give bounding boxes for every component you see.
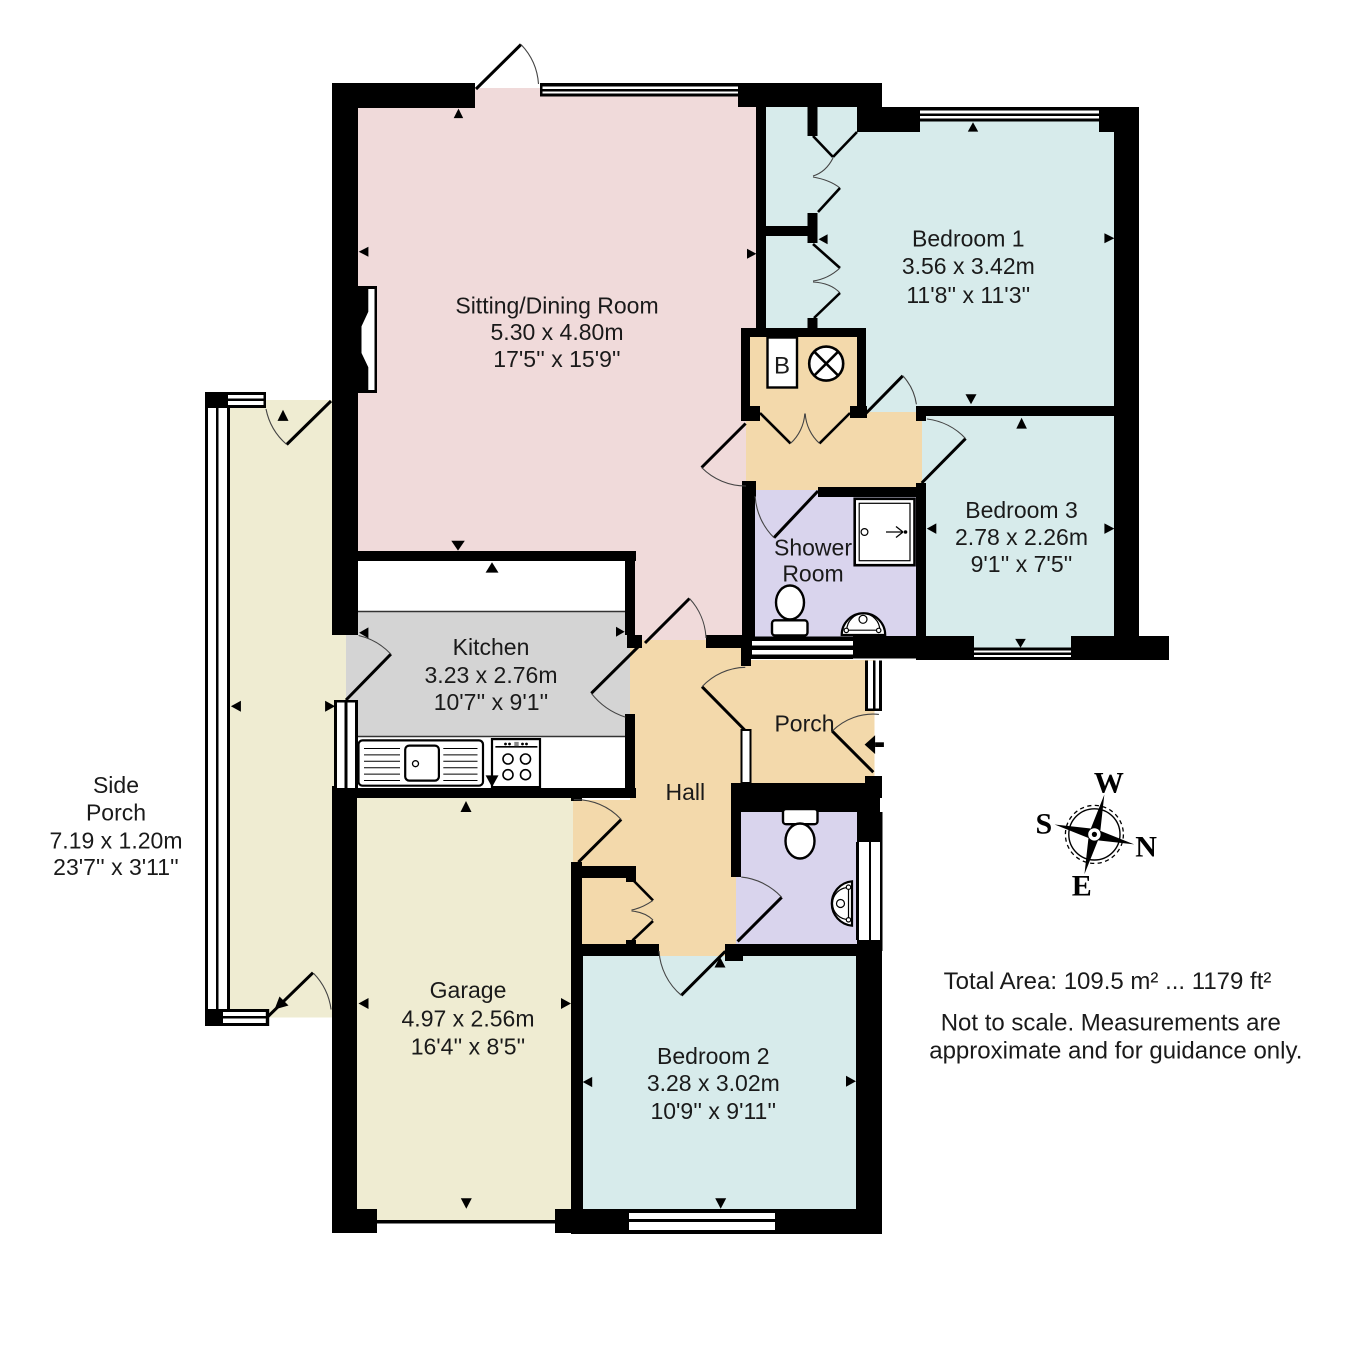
svg-text:Sitting/Dining Room: Sitting/Dining Room <box>455 293 658 319</box>
svg-text:Porch: Porch <box>86 800 146 826</box>
svg-text:10'9'' x 9'11'': 10'9'' x 9'11'' <box>650 1098 776 1124</box>
svg-text:7.19 x 1.20m: 7.19 x 1.20m <box>50 828 183 854</box>
svg-text:Garage: Garage <box>430 977 507 1003</box>
svg-text:E: E <box>1072 870 1092 903</box>
svg-text:Bedroom 2: Bedroom 2 <box>657 1043 770 1069</box>
svg-text:W: W <box>1094 767 1124 800</box>
svg-text:Side: Side <box>93 772 139 798</box>
svg-text:3.23 x 2.76m: 3.23 x 2.76m <box>425 662 558 688</box>
svg-text:Room: Room <box>782 561 843 587</box>
svg-text:B: B <box>774 353 790 380</box>
svg-text:4.97 x 2.56m: 4.97 x 2.56m <box>402 1005 535 1031</box>
svg-text:2.78 x 2.26m: 2.78 x 2.26m <box>955 524 1088 550</box>
svg-text:Porch: Porch <box>774 710 834 736</box>
svg-text:16'4'' x 8'5'': 16'4'' x 8'5'' <box>411 1034 526 1060</box>
svg-text:Total Area: 109.5 m² ... 1179: Total Area: 109.5 m² ... 1179 ft² <box>944 968 1272 995</box>
svg-text:Kitchen: Kitchen <box>453 634 530 660</box>
svg-text:9'1'' x 7'5'': 9'1'' x 7'5'' <box>971 551 1073 577</box>
svg-text:5.30 x 4.80m: 5.30 x 4.80m <box>491 319 624 345</box>
svg-text:Bedroom 1: Bedroom 1 <box>912 225 1025 251</box>
svg-text:Hall: Hall <box>665 779 705 805</box>
svg-text:17'5'' x 15'9'': 17'5'' x 15'9'' <box>493 346 620 372</box>
svg-text:Not to scale. Measurements are: Not to scale. Measurements are <box>941 1010 1281 1037</box>
svg-text:approximate and for guidance o: approximate and for guidance only. <box>929 1038 1302 1065</box>
svg-text:Shower: Shower <box>774 535 852 561</box>
svg-text:Bedroom 3: Bedroom 3 <box>965 497 1078 523</box>
svg-text:3.56 x 3.42m: 3.56 x 3.42m <box>902 253 1035 279</box>
svg-text:S: S <box>1036 808 1053 841</box>
svg-text:N: N <box>1135 831 1157 864</box>
svg-text:11'8'' x 11'3'': 11'8'' x 11'3'' <box>906 282 1030 308</box>
svg-text:3.28 x 3.02m: 3.28 x 3.02m <box>647 1070 780 1096</box>
svg-text:23'7'' x 3'11'': 23'7'' x 3'11'' <box>53 854 179 880</box>
svg-text:10'7'' x 9'1'': 10'7'' x 9'1'' <box>434 689 549 715</box>
